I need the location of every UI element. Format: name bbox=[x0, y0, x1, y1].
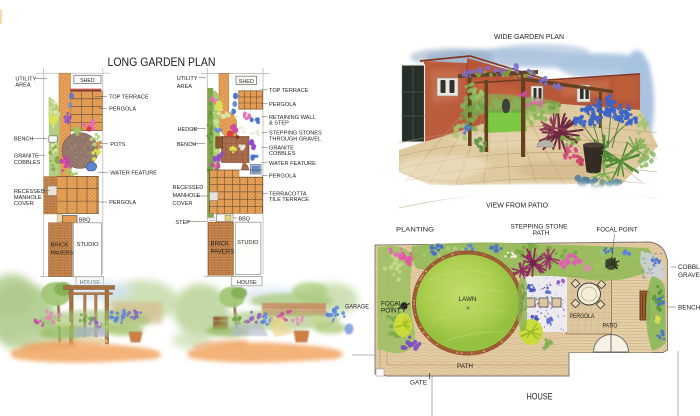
svg-text:PERGOLA: PERGOLA bbox=[109, 200, 136, 206]
svg-text:GARAGE: GARAGE bbox=[345, 304, 369, 311]
svg-text:PAVERS: PAVERS bbox=[51, 251, 74, 257]
svg-text:AREA: AREA bbox=[15, 82, 31, 88]
svg-text:HOUSE: HOUSE bbox=[237, 280, 257, 286]
svg-text:PATH: PATH bbox=[457, 363, 473, 370]
svg-text:HEDGE: HEDGE bbox=[178, 127, 198, 133]
svg-text:BRICK: BRICK bbox=[211, 241, 230, 248]
svg-text:PATIO: PATIO bbox=[603, 323, 618, 330]
svg-text:TOP TERRACE: TOP TERRACE bbox=[269, 88, 309, 94]
svg-text:BENCH: BENCH bbox=[14, 136, 34, 142]
svg-text:COVER: COVER bbox=[173, 201, 193, 207]
svg-text:POTS: POTS bbox=[110, 142, 125, 148]
svg-text:& STEP: & STEP bbox=[269, 121, 289, 127]
svg-text:COBBLES: COBBLES bbox=[678, 264, 700, 271]
svg-text:WIDE GARDEN PLAN: WIDE GARDEN PLAN bbox=[494, 32, 564, 41]
svg-text:FOCAL POINT: FOCAL POINT bbox=[597, 227, 638, 234]
svg-text:GATE: GATE bbox=[410, 380, 427, 387]
svg-text:FOCAL: FOCAL bbox=[381, 301, 403, 308]
svg-text:TOP TERRACE: TOP TERRACE bbox=[109, 95, 149, 101]
svg-text:SHED: SHED bbox=[239, 79, 254, 85]
svg-text:STUDIO: STUDIO bbox=[77, 242, 99, 248]
svg-text:BRICK: BRICK bbox=[51, 243, 69, 249]
svg-text:THROUGH GRAVEL: THROUGH GRAVEL bbox=[269, 136, 321, 142]
svg-text:RECESSED: RECESSED bbox=[173, 185, 204, 191]
svg-text:PLANTING: PLANTING bbox=[396, 227, 434, 234]
svg-text:COVER: COVER bbox=[14, 201, 34, 207]
svg-text:GRAVEL: GRAVEL bbox=[678, 272, 700, 279]
svg-text:WATER FEATURE: WATER FEATURE bbox=[269, 161, 316, 167]
svg-text:POINT: POINT bbox=[381, 308, 401, 315]
svg-text:SHED: SHED bbox=[80, 78, 95, 84]
svg-text:BENCH: BENCH bbox=[678, 305, 700, 312]
svg-text:UTILITY: UTILITY bbox=[177, 76, 198, 82]
svg-text:LAWN: LAWN bbox=[459, 296, 477, 303]
svg-text:GRANITE: GRANITE bbox=[14, 154, 39, 160]
svg-text:STUDIO: STUDIO bbox=[237, 240, 259, 246]
svg-text:LONG GARDEN PLAN: LONG GARDEN PLAN bbox=[108, 55, 216, 69]
svg-text:PERGOLA: PERGOLA bbox=[109, 106, 136, 112]
svg-text:COBBLES: COBBLES bbox=[14, 160, 41, 166]
svg-text:BENCH: BENCH bbox=[177, 142, 197, 148]
svg-text:WATER FEATURE: WATER FEATURE bbox=[110, 170, 157, 176]
svg-text:STEP: STEP bbox=[175, 220, 190, 226]
svg-text:COBBLES: COBBLES bbox=[269, 151, 296, 157]
svg-text:PATH: PATH bbox=[533, 230, 550, 237]
svg-text:PAVERS: PAVERS bbox=[211, 249, 235, 256]
svg-text:BBQ: BBQ bbox=[239, 217, 250, 223]
svg-text:VIEW FROM PATIO: VIEW FROM PATIO bbox=[486, 201, 548, 210]
svg-text:AREA: AREA bbox=[177, 84, 193, 90]
svg-text:HOUSE: HOUSE bbox=[527, 392, 553, 402]
svg-text:PERGOLA: PERGOLA bbox=[570, 313, 596, 320]
svg-text:PERGOLA: PERGOLA bbox=[269, 102, 296, 108]
svg-text:TILE TERRACE: TILE TERRACE bbox=[269, 197, 309, 203]
svg-text:PERGOLA: PERGOLA bbox=[269, 174, 296, 180]
